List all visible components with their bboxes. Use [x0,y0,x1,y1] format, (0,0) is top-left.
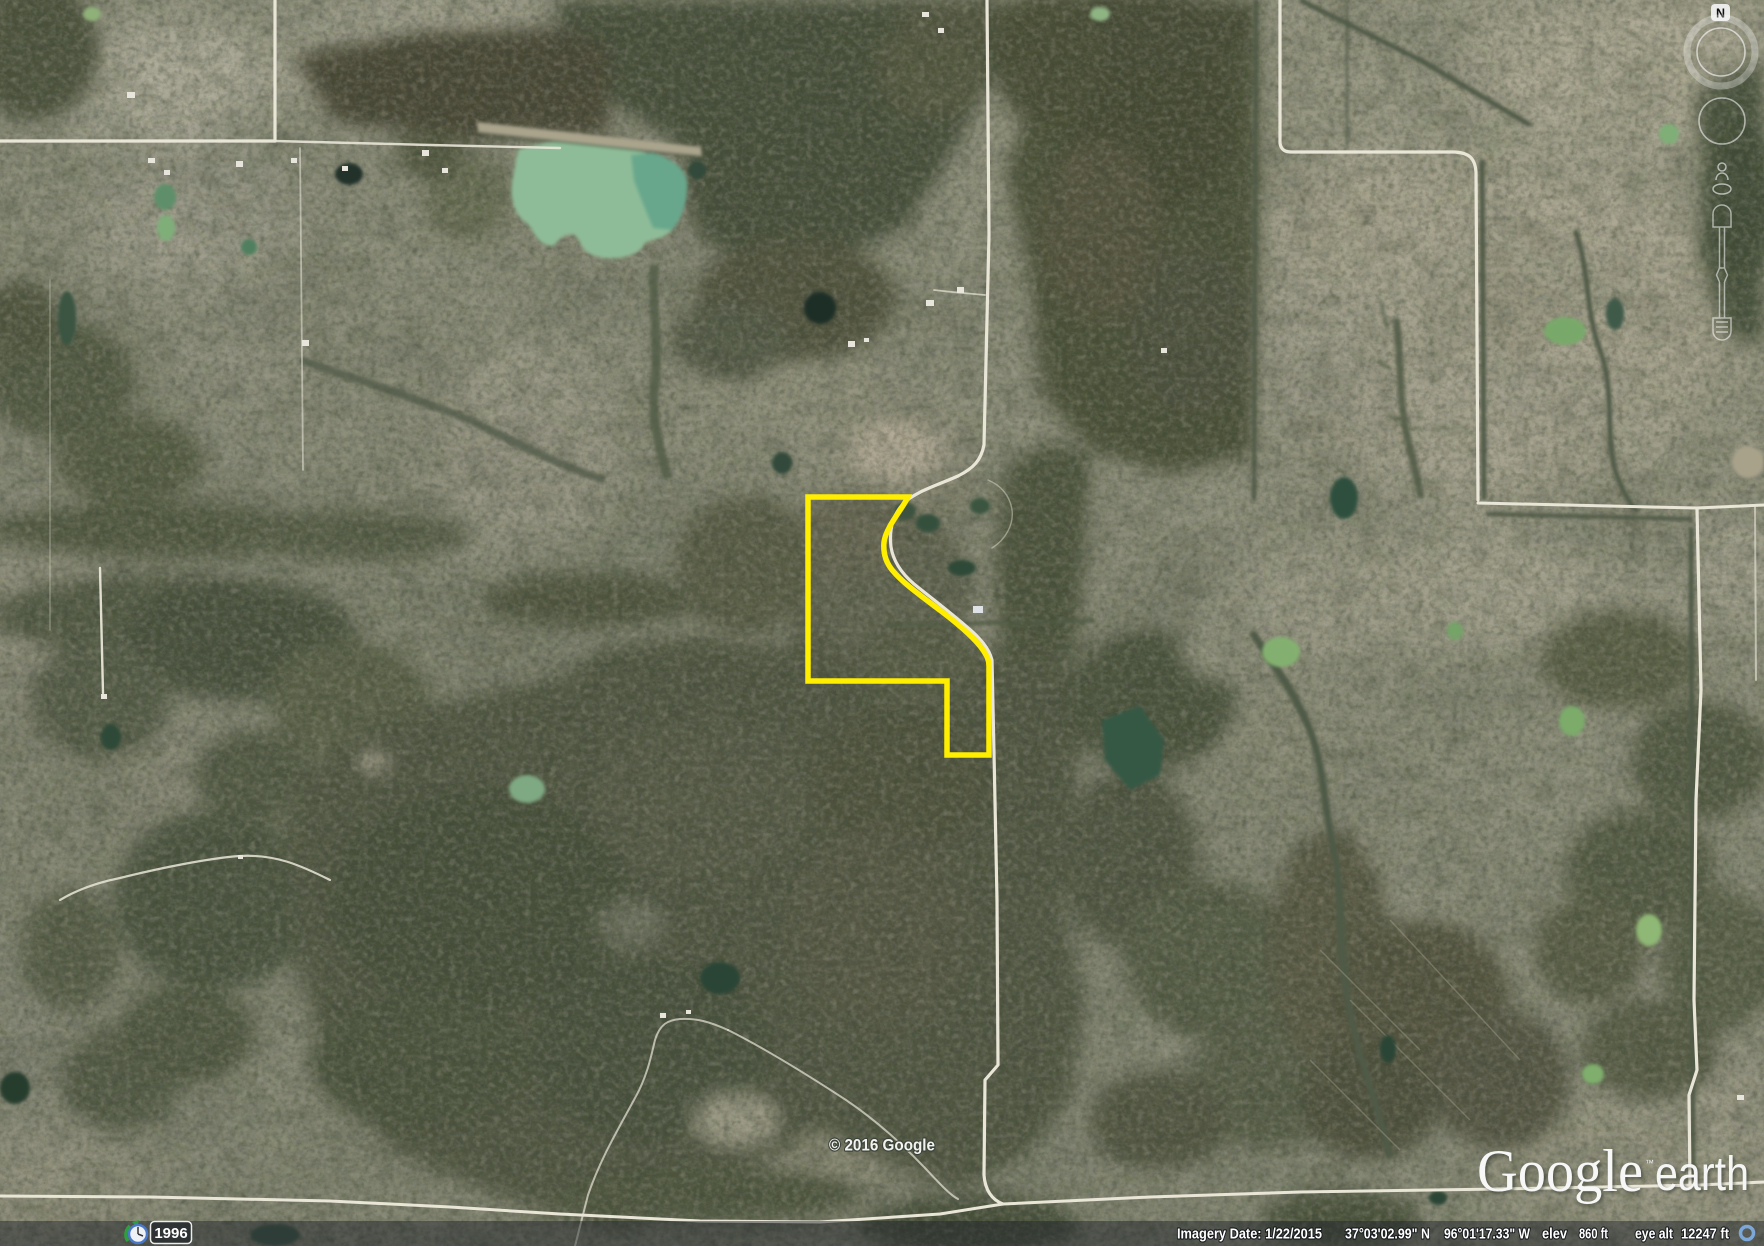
svg-text:12247 ft: 12247 ft [1681,1226,1729,1243]
svg-text:1996: 1996 [154,1225,187,1242]
svg-text:™: ™ [1645,1158,1654,1168]
svg-text:eye alt: eye alt [1635,1226,1673,1243]
svg-text:Imagery Date: 1/22/2015: Imagery Date: 1/22/2015 [1177,1226,1322,1243]
svg-text:earth: earth [1655,1148,1749,1201]
svg-text:96°01'17.33" W: 96°01'17.33" W [1444,1226,1531,1243]
svg-text:860 ft: 860 ft [1579,1226,1608,1243]
svg-text:© 2016 Google: © 2016 Google [829,1136,935,1155]
svg-text:37°03'02.99" N: 37°03'02.99" N [1345,1226,1430,1243]
svg-text:Google: Google [1477,1138,1643,1204]
svg-text:elev: elev [1542,1226,1568,1243]
